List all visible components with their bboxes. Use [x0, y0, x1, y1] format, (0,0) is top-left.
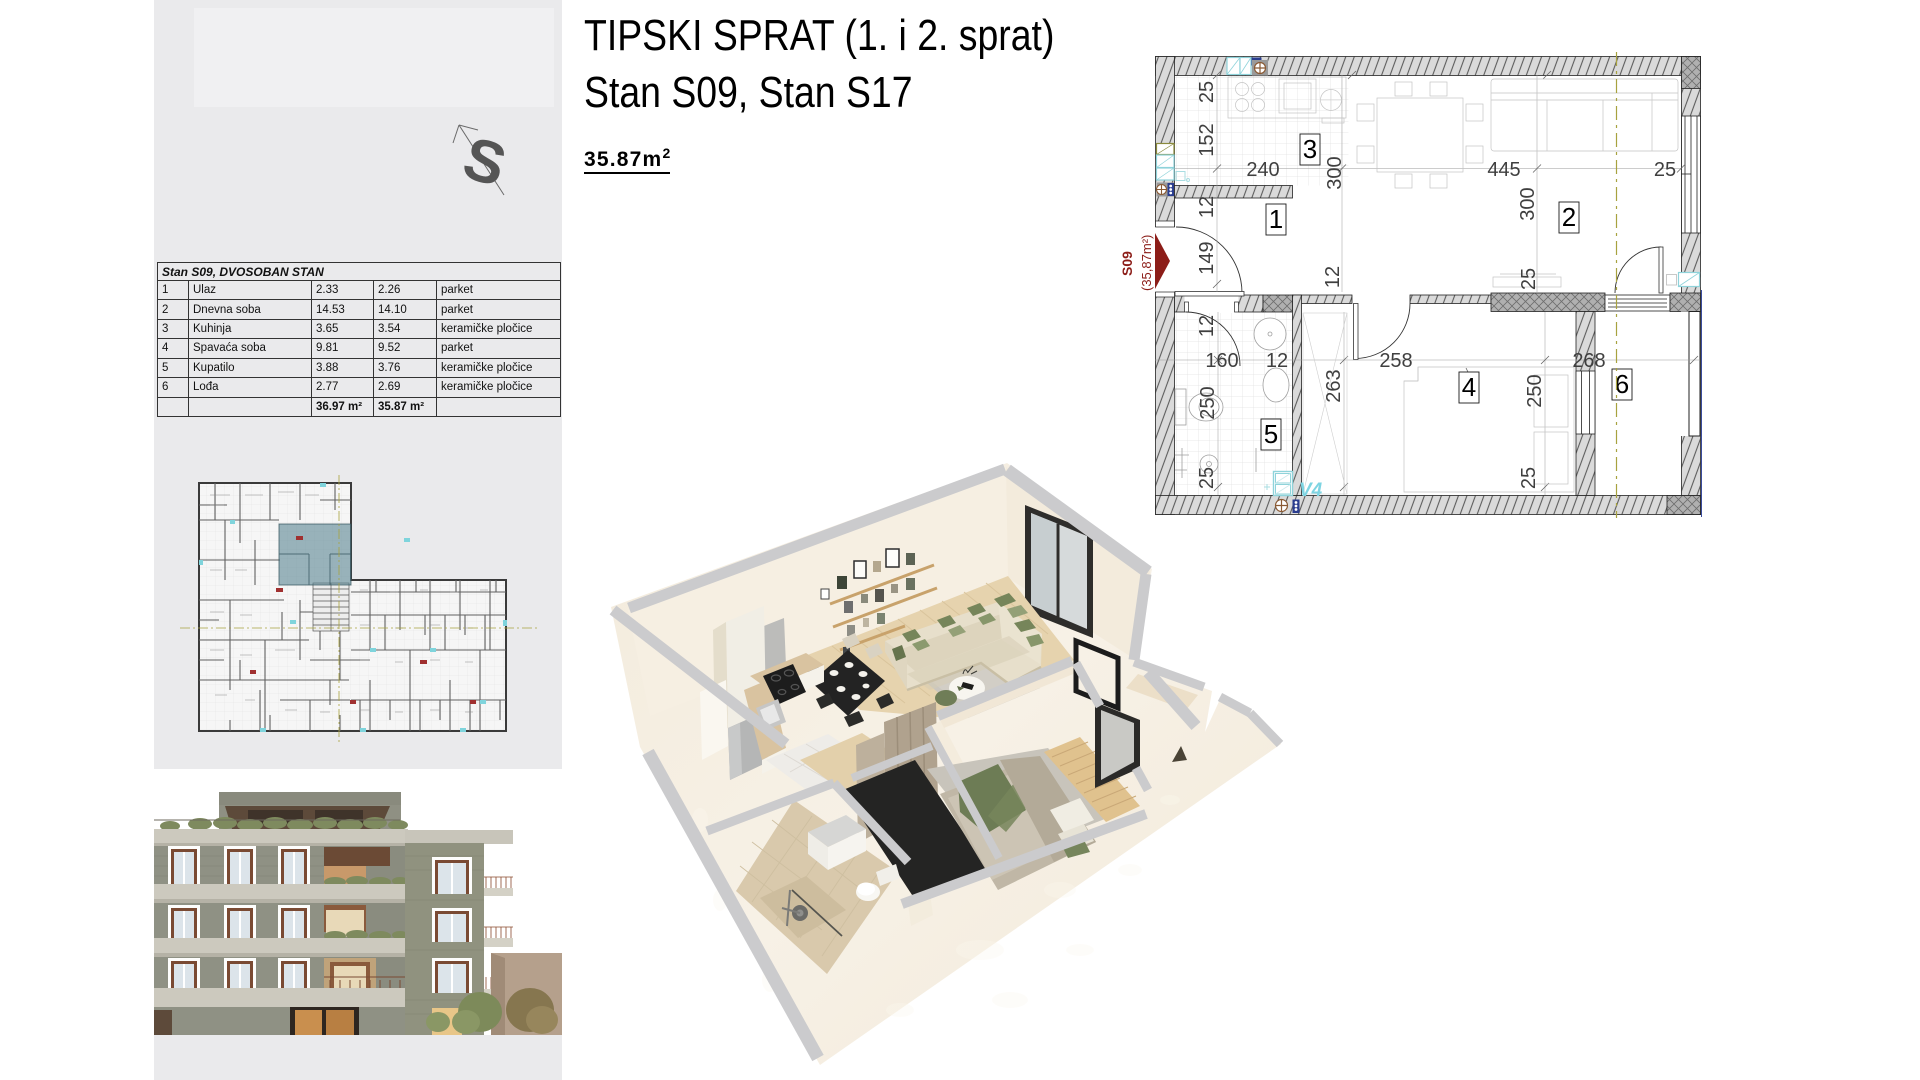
- svg-text:2: 2: [1562, 202, 1576, 232]
- svg-text:445: 445: [1487, 159, 1520, 181]
- svg-text:268: 268: [1572, 350, 1605, 372]
- svg-text:250: 250: [1524, 374, 1546, 407]
- svg-text:1: 1: [1269, 204, 1283, 234]
- svg-text:S: S: [456, 124, 514, 200]
- svg-text:4: 4: [1462, 372, 1476, 402]
- svg-text:258: 258: [1379, 350, 1412, 372]
- svg-text:240: 240: [1246, 159, 1279, 181]
- svg-text:250: 250: [1197, 386, 1219, 419]
- svg-text:S09: S09: [1119, 251, 1135, 276]
- svg-text:(35,87m²): (35,87m²): [1139, 235, 1154, 291]
- svg-text:12: 12: [1196, 315, 1218, 337]
- svg-text:25: 25: [1654, 159, 1676, 181]
- svg-text:160: 160: [1205, 350, 1238, 372]
- svg-text:263: 263: [1323, 369, 1345, 402]
- svg-text:25: 25: [1518, 268, 1540, 290]
- svg-text:25: 25: [1518, 467, 1540, 489]
- svg-text:3: 3: [1303, 134, 1317, 164]
- svg-text:12: 12: [1266, 350, 1288, 372]
- svg-text:300: 300: [1324, 156, 1346, 189]
- svg-text:300: 300: [1517, 187, 1539, 220]
- svg-text:152: 152: [1196, 123, 1218, 156]
- svg-text:12: 12: [1322, 266, 1344, 288]
- svg-text:149: 149: [1196, 241, 1218, 274]
- svg-text:5: 5: [1264, 419, 1278, 449]
- svg-text:12: 12: [1196, 196, 1218, 218]
- svg-text:25: 25: [1196, 81, 1218, 103]
